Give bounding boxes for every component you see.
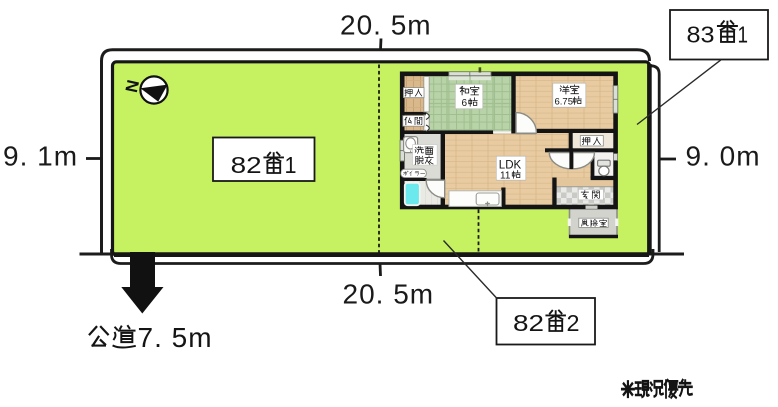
svg-text:82: 82: [231, 152, 262, 178]
svg-text:20. 5m: 20. 5m: [343, 278, 435, 309]
svg-text:82: 82: [513, 310, 544, 336]
svg-text:6.75: 6.75: [555, 97, 574, 108]
svg-text:11: 11: [500, 171, 511, 182]
svg-text:2: 2: [567, 310, 580, 336]
svg-text:1: 1: [285, 152, 297, 178]
svg-text:9. 1m: 9. 1m: [3, 140, 78, 171]
svg-text:9. 0m: 9. 0m: [686, 141, 761, 172]
svg-text:83: 83: [687, 21, 715, 47]
svg-text:20. 5m: 20. 5m: [340, 9, 432, 40]
svg-text:7. 5m: 7. 5m: [138, 322, 213, 353]
svg-text:6: 6: [462, 98, 468, 109]
svg-text:1: 1: [738, 21, 749, 47]
